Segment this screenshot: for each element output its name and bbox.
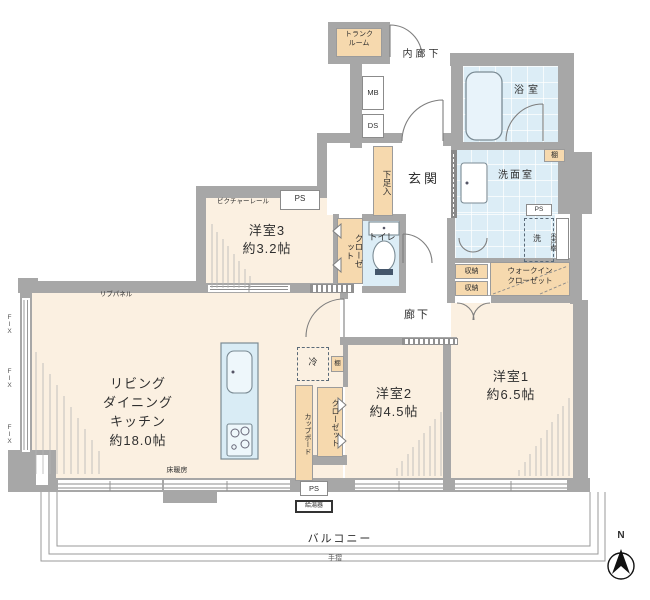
ldk-door-gap bbox=[340, 299, 348, 337]
balcony-equipment-block bbox=[163, 492, 217, 503]
room3-label: 洋室3 約3.2帖 bbox=[212, 222, 322, 257]
toilet-label: トイレ bbox=[363, 231, 401, 243]
shoe-cabinet-label: 下足入 bbox=[375, 158, 391, 208]
fridge-label: 冷 bbox=[297, 356, 329, 368]
closet-room3-label: クローゼット bbox=[337, 231, 363, 271]
corridor-label: 廊下 bbox=[390, 308, 444, 323]
storage-1-label: 収納 bbox=[455, 267, 488, 276]
front-door-gap bbox=[402, 133, 443, 143]
shelf-kitchen-label: 棚 bbox=[331, 360, 344, 369]
entry-pocket-floor bbox=[327, 143, 375, 215]
handrail-label: 手摺 bbox=[315, 554, 355, 563]
wall-bath-left bbox=[451, 63, 463, 150]
north-compass bbox=[608, 549, 634, 579]
ps-bottom-label: PS bbox=[300, 484, 328, 494]
ldk-window-b bbox=[164, 480, 290, 490]
fix-window-label-3: FIX bbox=[2, 420, 12, 448]
wall-pillar-bottom-left bbox=[8, 450, 56, 492]
room3-sliding-door bbox=[310, 284, 354, 293]
room2-label: 洋室2 約4.5帖 bbox=[349, 385, 439, 420]
fix-window-label-1: FIX bbox=[2, 310, 12, 338]
closet-room2-label: クローゼット bbox=[321, 391, 339, 455]
bath-label: 浴室 bbox=[502, 84, 554, 98]
rib-panel-label: リブパネル bbox=[92, 291, 140, 300]
wall-bath-top bbox=[450, 53, 574, 66]
hanging-cupboard-label: 吊戸棚 bbox=[545, 223, 555, 261]
balcony-label: バルコニー bbox=[295, 532, 385, 547]
wall-room3-left bbox=[196, 186, 206, 292]
inner-corridor-label: 内廊下 bbox=[390, 48, 454, 62]
room1-window bbox=[455, 480, 567, 490]
wall-bath-wash-divider bbox=[451, 142, 558, 150]
corridor-floor-b bbox=[403, 218, 447, 296]
wall-right-room1 bbox=[573, 300, 588, 492]
floor-plan: トランク ルーム 内廊下 MB DS 浴室 棚 洗面室 PS 洗 吊戸棚 玄関 … bbox=[0, 0, 650, 600]
left-window bbox=[22, 298, 30, 452]
washroom-label: 洗面室 bbox=[484, 169, 548, 183]
cupboard-label: カップボード bbox=[297, 393, 311, 475]
ldk-label: リビング ダイニング キッチン 約18.0帖 bbox=[78, 375, 198, 450]
water-heater-label: 給湯器 bbox=[295, 502, 333, 510]
storage-2-label: 収納 bbox=[455, 284, 488, 293]
ps-room3-label: PS bbox=[280, 194, 320, 205]
wall-corridor-right-lower bbox=[447, 263, 455, 297]
wall-corridor-right-upper bbox=[447, 218, 455, 263]
room2-window bbox=[355, 480, 443, 490]
ldk-window-a bbox=[58, 480, 162, 490]
room2-sliding-door bbox=[402, 338, 458, 345]
bath-floor bbox=[463, 66, 558, 142]
wall-toilet-bottom bbox=[362, 286, 406, 293]
floor-heating-label: 床暖房 bbox=[155, 466, 199, 475]
mb-label: MB bbox=[362, 88, 384, 98]
walk-in-closet-label: ウォークイン クローゼット bbox=[490, 266, 570, 286]
genkan-label: 玄関 bbox=[398, 170, 450, 188]
wall-right-upper bbox=[558, 63, 574, 155]
pillar-slot bbox=[36, 455, 48, 485]
compass-n-label: N bbox=[614, 529, 628, 543]
room1-door-gap bbox=[455, 296, 491, 303]
trunk-room-label: トランク ルーム bbox=[337, 30, 381, 49]
room1-label: 洋室1 約6.5帖 bbox=[452, 368, 570, 403]
wall-entry-left bbox=[317, 133, 327, 193]
shelf-bath-label: 棚 bbox=[544, 151, 565, 160]
room3-window bbox=[208, 285, 290, 292]
ps-washroom-label: PS bbox=[526, 206, 552, 215]
wall-room2-room1-divider bbox=[443, 345, 451, 478]
washroom-side-slot bbox=[556, 218, 569, 260]
fix-window-label-2: FIX bbox=[2, 364, 12, 392]
picture-rail-label: ピクチャーレール bbox=[206, 198, 280, 207]
wall-genkan-wash-slider bbox=[451, 150, 457, 218]
ds-label: DS bbox=[362, 121, 384, 131]
